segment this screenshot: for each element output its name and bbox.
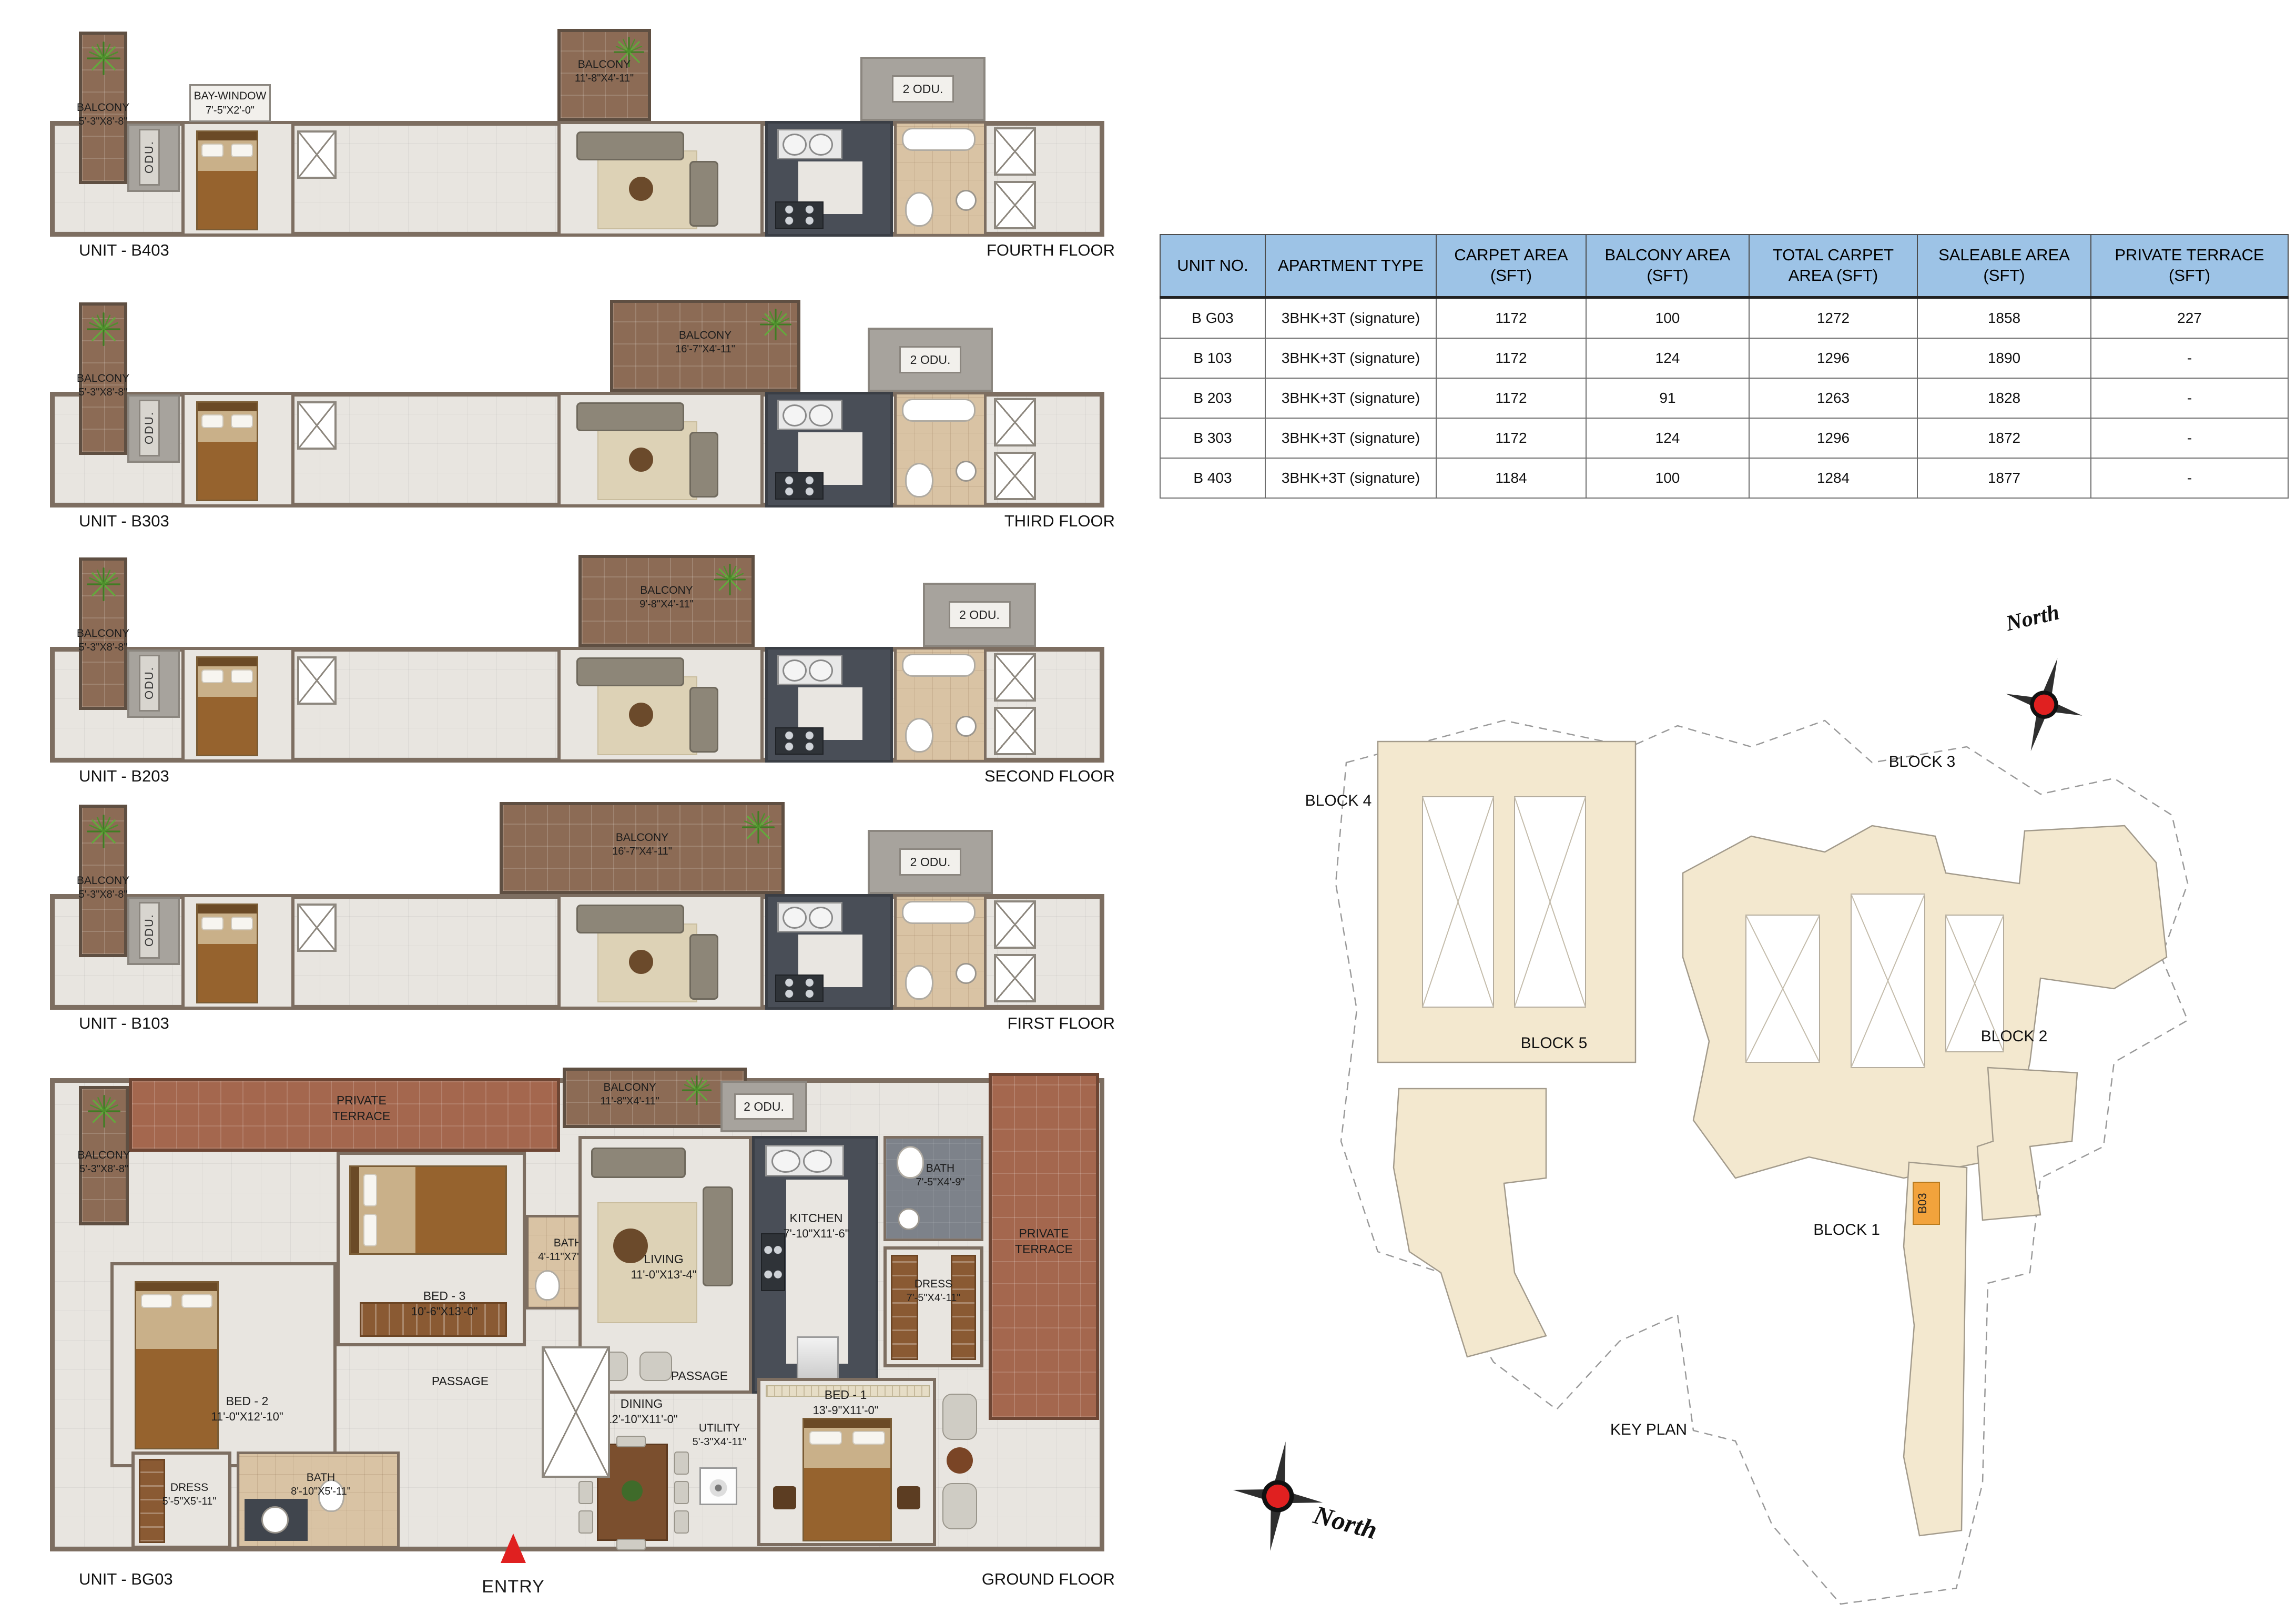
room-dim: 12'-10"X11'-0" — [605, 1412, 677, 1427]
armchair — [942, 1394, 977, 1440]
table-cell: 3BHK+3T (signature) — [1265, 338, 1436, 378]
table-cell: B G03 — [1160, 298, 1265, 339]
table-header-cell: BALCONY AREA (SFT) — [1586, 235, 1749, 298]
plant-icon — [86, 567, 121, 602]
nightstand — [897, 1486, 920, 1509]
table-cell: - — [2091, 338, 2288, 378]
living-room — [557, 121, 764, 237]
washbasin — [956, 190, 977, 211]
room-label: DRESS — [162, 1480, 217, 1495]
table-cell: 100 — [1586, 298, 1749, 339]
washing-machine — [699, 1467, 737, 1505]
balcony-left: BALCONY 5'-3"X8'-8" — [79, 32, 127, 184]
toilet — [905, 965, 933, 1000]
table-header-cell: APARTMENT TYPE — [1265, 235, 1436, 298]
table-cell: 1172 — [1436, 378, 1586, 418]
north-label: North — [2003, 600, 2061, 636]
key-plan-title: KEY PLAN — [1610, 1421, 1687, 1438]
living-room — [557, 392, 764, 507]
bed — [135, 1281, 219, 1449]
room-label: BATH — [916, 1161, 965, 1175]
table-cell: 124 — [1586, 338, 1749, 378]
table-cell: 1858 — [1917, 298, 2091, 339]
washbasin — [956, 716, 977, 737]
room-dim: 5'-3"X8'-8" — [77, 115, 129, 128]
wardrobe — [951, 1255, 976, 1360]
stove — [775, 472, 824, 500]
room-dim: 11'-8"X4'-11" — [601, 1094, 659, 1108]
kitchen — [765, 647, 893, 763]
floor-plan-row-b403: BALCONY 5'-3"X8'-8" ODU. BAY-WINDOW 7'-5… — [0, 16, 1120, 263]
table-cell: 3BHK+3T (signature) — [1265, 418, 1436, 458]
room-dim: 5'-5"X5'-11" — [162, 1495, 217, 1508]
bathtub — [902, 654, 976, 677]
floor-plan-row-b303: BALCONY 5'-3"X8'-8" ODU. BALCONY 16'-7"X… — [0, 287, 1120, 534]
armchair — [639, 1352, 672, 1381]
living-room — [557, 894, 764, 1010]
odu-label-box: ODU. — [139, 129, 160, 186]
room-dim: 5'-3"X8'-8" — [77, 888, 129, 901]
room-dim: 7'-10"X11'-6" — [783, 1226, 849, 1242]
side-table — [947, 1447, 973, 1474]
sofa — [703, 1186, 733, 1286]
bed — [349, 1165, 507, 1255]
sofa — [689, 161, 718, 227]
plant-icon — [86, 814, 121, 849]
plant-icon — [682, 1075, 712, 1105]
unit-label: UNIT - BG03 — [79, 1570, 173, 1589]
odu2-area: 2 ODU. — [923, 583, 1036, 647]
odu2-label-box: 2 ODU. — [949, 601, 1011, 628]
living-room — [557, 647, 764, 763]
coffee-table — [629, 950, 653, 974]
balcony-left: BALCONY 5'-3"X8'-8" — [79, 557, 127, 710]
balcony-left: BALCONY 5'-3"X8'-8" — [79, 1086, 129, 1225]
floor-label: THIRD FLOOR — [1004, 512, 1115, 531]
odu2-area: 2 ODU. — [868, 328, 993, 392]
block-2-building — [1977, 1068, 2077, 1220]
odu2-area: 2 ODU. — [720, 1081, 807, 1132]
washbasin — [261, 1506, 289, 1534]
room-label: BALCONY — [77, 1148, 130, 1162]
sofa — [576, 905, 684, 933]
washbasin — [898, 1208, 920, 1230]
passage-label: PASSAGE — [432, 1374, 489, 1389]
room-dim: 11'-8"X4'-11" — [575, 72, 634, 85]
block-label-1: BLOCK 1 — [1813, 1221, 1880, 1239]
north-compass-icon — [1993, 647, 2096, 762]
room-label: DRESS — [907, 1277, 961, 1291]
table-row: B 4033BHK+3T (signature)118410012841877- — [1160, 458, 2288, 498]
coffee-table — [629, 703, 653, 727]
washbasin — [956, 461, 977, 482]
table-cell: 1184 — [1436, 458, 1586, 498]
table-cell: - — [2091, 378, 2288, 418]
bathroom — [894, 121, 987, 237]
room-dim: 9'-8"X4'-11" — [639, 597, 694, 611]
north-compass-icon — [1225, 1435, 1330, 1557]
table-cell: 3BHK+3T (signature) — [1265, 378, 1436, 418]
nightstand — [773, 1486, 796, 1509]
private-terrace-top: PRIVATE TERRACE — [129, 1078, 560, 1152]
table-cell: 3BHK+3T (signature) — [1265, 298, 1436, 339]
key-plan: B03 BLOCK 4 BLOCK 3 BLOCK 5 BLOCK 2 BLOC… — [1220, 589, 2293, 1615]
table-cell: - — [2091, 458, 2288, 498]
room-dim: 16'-7"X4'-11" — [675, 342, 735, 356]
table-header-cell: TOTAL CARPET AREA (SFT) — [1749, 235, 1917, 298]
stair-shaft — [994, 452, 1036, 500]
bathroom-2 — [237, 1452, 400, 1549]
room-label: BALCONY — [575, 57, 634, 72]
kitchen-sink — [777, 129, 842, 159]
table-cell: 1877 — [1917, 458, 2091, 498]
table-cell: 1284 — [1749, 458, 1917, 498]
floor-plan-ground: PRIVATE TERRACE BALCONY 5'-3"X8'-8" ODU.… — [0, 1068, 1120, 1624]
stair-shaft — [994, 707, 1036, 755]
bed — [802, 1418, 892, 1541]
lift-shaft — [994, 900, 1036, 949]
private-terrace-right: PRIVATE TERRACE — [989, 1073, 1099, 1420]
table-cell: 1172 — [1436, 338, 1586, 378]
kitchen — [765, 894, 893, 1010]
entry-arrow-icon — [501, 1534, 526, 1563]
stair-shaft — [994, 954, 1036, 1002]
unit-label: UNIT - B203 — [79, 767, 169, 786]
room-dim: 7'-5"X2'-0" — [194, 104, 267, 117]
table-row: B 2033BHK+3T (signature)11729112631828- — [1160, 378, 2288, 418]
bay-window: BAY-WINDOW 7'-5"X2'-0" — [189, 84, 271, 122]
table-cell: B 403 — [1160, 458, 1265, 498]
table-cell: 1272 — [1749, 298, 1917, 339]
lift-shaft — [297, 656, 337, 705]
table-cell: 1263 — [1749, 378, 1917, 418]
toilet — [905, 463, 933, 498]
room-dim: 11'-0"X13'-4" — [631, 1267, 696, 1283]
table-cell: 1890 — [1917, 338, 2091, 378]
bathtub — [902, 901, 976, 924]
room-label: DINING — [605, 1396, 677, 1412]
room-label: PRIVATE — [1015, 1226, 1073, 1242]
block-label-5: BLOCK 5 — [1521, 1034, 1588, 1052]
room-label: BED - 1 — [812, 1387, 878, 1403]
sofa — [689, 934, 718, 1000]
table-row: B 1033BHK+3T (signature)117212412961890- — [1160, 338, 2288, 378]
room-label: BED - 3 — [411, 1288, 478, 1304]
bedroom — [181, 392, 294, 507]
odu2-label: 2 ODU. — [959, 608, 1000, 622]
room-label: BATH — [291, 1470, 351, 1485]
bed — [196, 130, 258, 230]
kitchen-sink — [777, 655, 842, 685]
armchair — [942, 1483, 977, 1529]
kitchen-sink — [777, 400, 842, 430]
table-cell: - — [2091, 418, 2288, 458]
area-table-body: B G033BHK+3T (signature)1172100127218582… — [1160, 298, 2288, 499]
lift-shaft — [994, 398, 1036, 446]
balcony-center: BALCONY 9'-8"X4'-11" — [578, 555, 755, 647]
balcony-center: BALCONY 11'-8"X4'-11" — [557, 29, 651, 121]
stair-shaft — [994, 181, 1036, 229]
room-label: BALCONY — [77, 100, 129, 115]
table-cell: 124 — [1586, 418, 1749, 458]
table-row: B 3033BHK+3T (signature)117212412961872- — [1160, 418, 2288, 458]
table-header-row: UNIT NO.APARTMENT TYPECARPET AREA (SFT)B… — [1160, 235, 2288, 298]
block-label-4: BLOCK 4 — [1305, 792, 1372, 809]
table-cell: 1172 — [1436, 418, 1586, 458]
refrigerator — [797, 1336, 839, 1384]
kitchen — [765, 121, 893, 237]
room-label: BALCONY — [77, 626, 129, 641]
kitchen-sink — [765, 1145, 844, 1176]
block-label-2: BLOCK 2 — [1981, 1028, 2048, 1045]
room-label: BALCONY — [675, 328, 735, 342]
table-cell: 227 — [2091, 298, 2288, 339]
room-label: BALCONY — [612, 830, 672, 845]
room-dim: 11'-0"X12'-10" — [211, 1409, 283, 1425]
area-table: UNIT NO.APARTMENT TYPECARPET AREA (SFT)B… — [1160, 234, 2289, 499]
table-cell: 1872 — [1917, 418, 2091, 458]
plant-icon — [86, 41, 121, 76]
entry-label: ENTRY — [482, 1575, 545, 1598]
table-cell: B 103 — [1160, 338, 1265, 378]
room-dim: 5'-3"X4'-11" — [693, 1435, 747, 1449]
sofa — [689, 687, 718, 753]
room-label: LIVING — [631, 1252, 696, 1267]
unit-label: UNIT - B403 — [79, 241, 169, 260]
balcony-center: BALCONY 16'-7"X4'-11" — [500, 802, 785, 894]
floor-plan-sheet: BALCONY 5'-3"X8'-8" ODU. BAY-WINDOW 7'-5… — [0, 0, 2296, 1624]
kitchen — [752, 1136, 878, 1394]
room-label: KITCHEN — [783, 1211, 849, 1226]
odu2-label: 2 ODU. — [910, 353, 951, 367]
room-label: BALCONY — [639, 583, 694, 597]
bedroom — [181, 894, 294, 1010]
room-dim: 5'-3"X8'-8" — [77, 385, 129, 399]
sofa — [576, 402, 684, 431]
table-cell: 91 — [1586, 378, 1749, 418]
odu2-label-box: 2 ODU. — [899, 346, 961, 373]
room-label: PRIVATE — [332, 1093, 390, 1109]
room-label: TERRACE — [332, 1109, 390, 1124]
table-cell: B 203 — [1160, 378, 1265, 418]
balcony-left: BALCONY 5'-3"X8'-8" — [79, 302, 127, 455]
sofa — [576, 657, 684, 686]
lift-shaft — [994, 127, 1036, 176]
north-label: North — [1310, 1499, 1380, 1545]
dress-1 — [883, 1246, 983, 1367]
room-label: BED - 2 — [211, 1394, 283, 1409]
table-header-cell: SALEABLE AREA (SFT) — [1917, 235, 2091, 298]
unit-label: UNIT - B103 — [79, 1014, 169, 1033]
room-label: BALCONY — [77, 874, 129, 888]
block-5-building — [1394, 1089, 1546, 1357]
odu2-label-box: 2 ODU. — [892, 75, 954, 103]
block-4-building — [1378, 742, 1635, 1062]
room-label: TERRACE — [1015, 1242, 1073, 1257]
table-header-cell: CARPET AREA (SFT) — [1436, 235, 1586, 298]
kitchen — [765, 392, 893, 507]
block-label-3: BLOCK 3 — [1889, 753, 1956, 770]
coffee-table — [629, 177, 653, 201]
bedroom — [181, 121, 294, 237]
room-dim: 10'-6"X13'-0" — [411, 1304, 478, 1319]
lift-shaft — [994, 653, 1036, 702]
odu-label-box: ODU. — [139, 655, 160, 712]
plant-icon — [87, 1094, 121, 1128]
sofa — [576, 131, 684, 160]
table-cell: 100 — [1586, 458, 1749, 498]
odu2-label-box: 2 ODU. — [899, 848, 961, 876]
floor-plan-row-b103: BALCONY 5'-3"X8'-8" ODU. BALCONY 16'-7"X… — [0, 789, 1120, 1036]
room-dim: 8'-10"X5'-11" — [291, 1485, 351, 1498]
room-dim: 5'-3"X8'-8" — [77, 1162, 130, 1176]
bed — [196, 656, 258, 756]
plant-icon — [714, 563, 746, 596]
sofa — [689, 432, 718, 498]
table-cell: 1296 — [1749, 338, 1917, 378]
room-dim: 16'-7"X4'-11" — [612, 845, 672, 858]
bedroom — [181, 647, 294, 763]
floor-plan-row-b203: BALCONY 5'-3"X8'-8" ODU. BALCONY 9'-8"X4… — [0, 542, 1120, 789]
wardrobe — [891, 1255, 918, 1360]
unit-label: UNIT - B303 — [79, 512, 169, 531]
balcony-center: BALCONY 16'-7"X4'-11" — [610, 300, 800, 392]
odu2-area: 2 ODU. — [868, 830, 993, 894]
stove — [761, 1233, 785, 1291]
bathtub — [902, 399, 976, 422]
washbasin — [956, 963, 977, 984]
block-3-building — [1683, 826, 2167, 1178]
floor-label: GROUND FLOOR — [982, 1570, 1115, 1589]
bed — [196, 401, 258, 501]
room-label: BALCONY — [601, 1080, 659, 1094]
odu2-label: 2 ODU. — [744, 1100, 784, 1114]
kitchen-sink — [777, 902, 842, 932]
lift-shaft — [297, 130, 337, 179]
sofa — [591, 1148, 686, 1178]
room-label: BALCONY — [77, 371, 129, 385]
coffee-table — [629, 448, 653, 472]
stove — [775, 727, 824, 755]
table-cell: 1172 — [1436, 298, 1586, 339]
bathtub — [902, 128, 976, 151]
floor-label: SECOND FLOOR — [984, 767, 1115, 786]
stove — [775, 975, 824, 1002]
toilet — [905, 192, 933, 227]
stove — [775, 201, 824, 229]
table-cell: 3BHK+3T (signature) — [1265, 458, 1436, 498]
table-row: B G033BHK+3T (signature)1172100127218582… — [1160, 298, 2288, 339]
entry-door-panel — [542, 1346, 610, 1478]
room-label: BAY-WINDOW — [194, 89, 267, 103]
odu-label-box: ODU. — [139, 400, 160, 456]
plant-icon — [86, 312, 121, 347]
wardrobe — [139, 1459, 165, 1543]
table-cell: B 303 — [1160, 418, 1265, 458]
odu-label-box: ODU. — [139, 902, 160, 959]
balcony-left: BALCONY 5'-3"X8'-8" — [79, 805, 127, 957]
lift-shaft — [297, 401, 337, 450]
b03-label: B03 — [1916, 1193, 1929, 1213]
room-dim: 7'-5"X4'-11" — [907, 1291, 961, 1305]
bedroom-2 — [110, 1262, 337, 1467]
room-dim: 7'-5"X4'-9" — [916, 1175, 965, 1189]
floor-label: FIRST FLOOR — [1008, 1014, 1115, 1033]
bathroom — [894, 647, 987, 763]
odu2-label: 2 ODU. — [903, 82, 943, 96]
odu2-label-box: 2 ODU. — [734, 1093, 794, 1120]
lift-shaft — [297, 904, 337, 952]
table-header-cell: UNIT NO. — [1160, 235, 1265, 298]
balcony-center: BALCONY 11'-8"X4'-11" — [563, 1068, 747, 1128]
bathroom — [894, 392, 987, 507]
floor-label: FOURTH FLOOR — [987, 241, 1115, 260]
room-dim: 5'-3"X8'-8" — [77, 641, 129, 654]
table-cell: 1296 — [1749, 418, 1917, 458]
bed — [196, 904, 258, 1003]
odu2-area: 2 ODU. — [860, 57, 986, 121]
toilet — [905, 718, 933, 753]
plant-icon — [759, 308, 792, 341]
room-label: UTILITY — [693, 1421, 747, 1435]
bathroom — [894, 894, 987, 1010]
block-1-building: B03 — [1904, 1162, 1967, 1536]
table-cell: 1828 — [1917, 378, 2091, 418]
room-dim: 13'-9"X11'-0" — [812, 1403, 878, 1418]
passage-label: PASSAGE — [671, 1368, 728, 1384]
plant-icon — [741, 810, 775, 844]
toilet — [535, 1270, 560, 1301]
table-header-cell: PRIVATE TERRACE (SFT) — [2091, 235, 2288, 298]
odu2-label: 2 ODU. — [910, 855, 951, 869]
